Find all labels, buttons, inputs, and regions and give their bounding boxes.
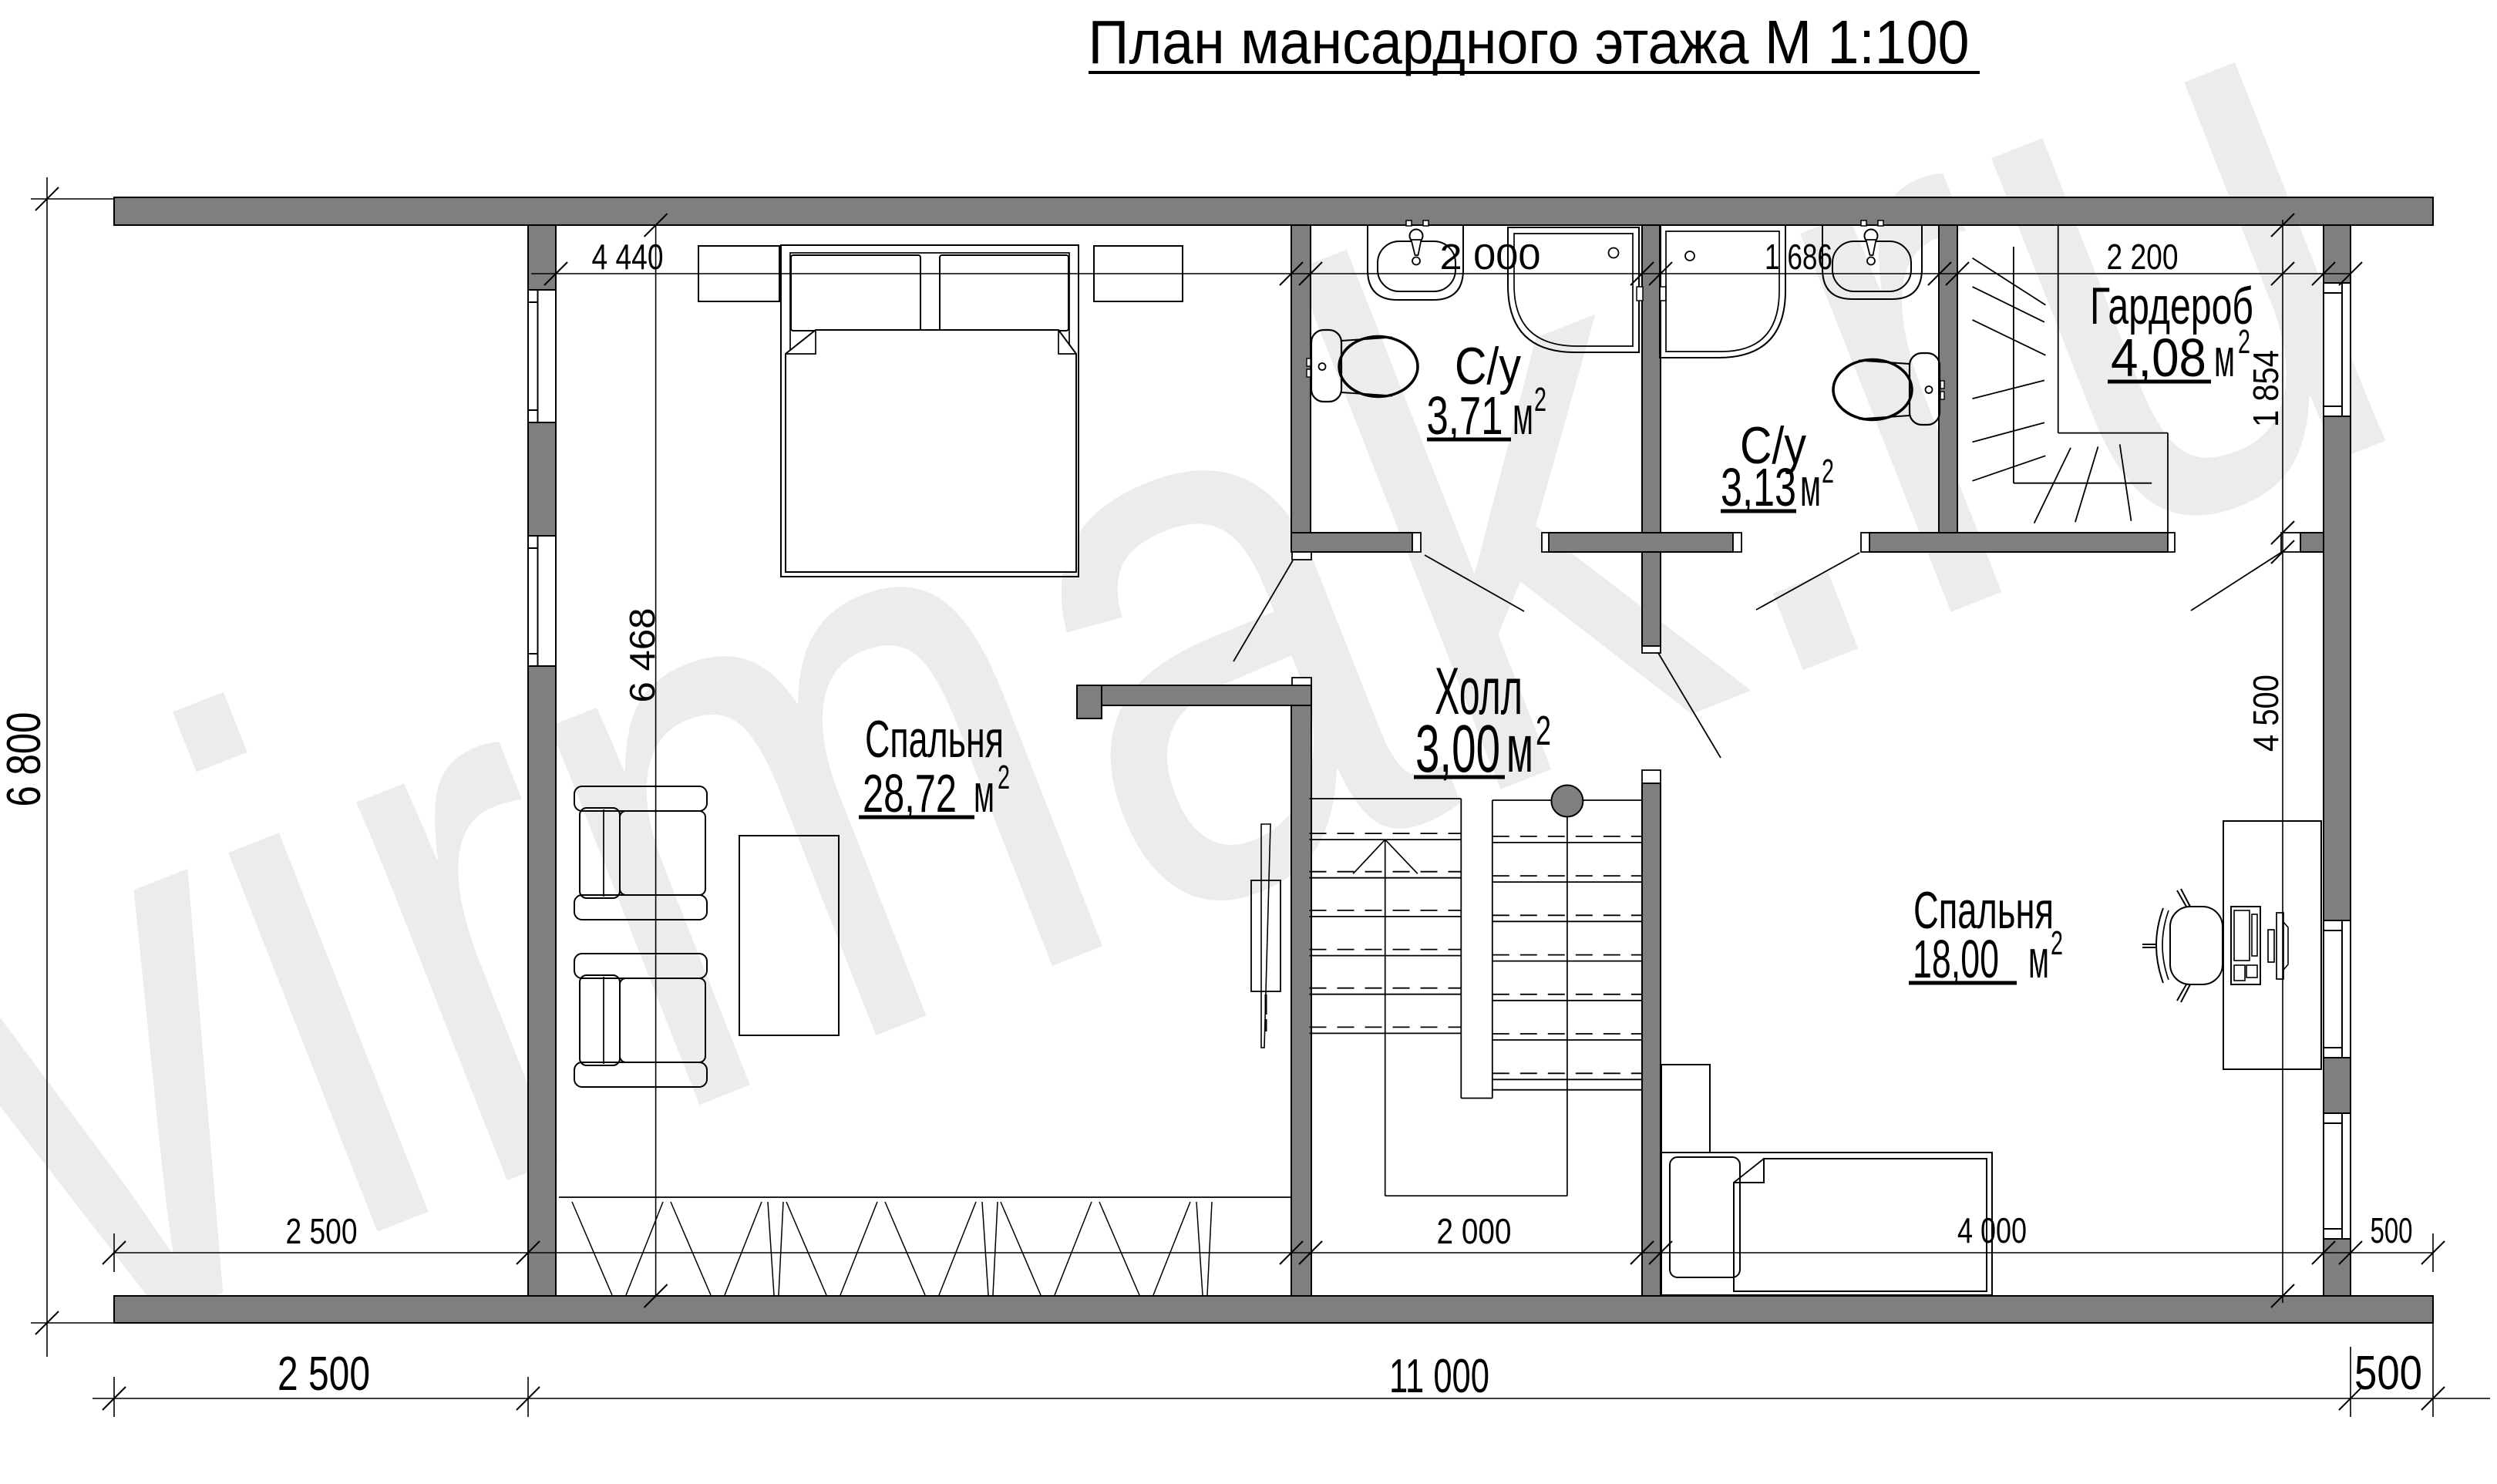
svg-text:2: 2 bbox=[2051, 924, 2063, 962]
svg-text:2: 2 bbox=[1536, 708, 1551, 754]
svg-text:2 500: 2 500 bbox=[286, 1211, 358, 1251]
svg-text:3,00: 3,00 bbox=[1415, 712, 1500, 786]
svg-text:2: 2 bbox=[998, 759, 1010, 796]
svg-text:м: м bbox=[2028, 929, 2049, 989]
svg-text:2: 2 bbox=[1822, 453, 1834, 490]
svg-text:3,13: 3,13 bbox=[1721, 457, 1796, 517]
svg-text:4 440: 4 440 bbox=[592, 237, 664, 277]
svg-text:2 200: 2 200 bbox=[2107, 237, 2179, 277]
svg-text:4 000: 4 000 bbox=[1957, 1210, 2027, 1250]
svg-text:1 686: 1 686 bbox=[1765, 237, 1832, 277]
svg-text:м: м bbox=[974, 763, 994, 823]
svg-text:3,71: 3,71 bbox=[1427, 385, 1503, 446]
svg-text:500: 500 bbox=[2371, 1210, 2413, 1250]
svg-text:2: 2 bbox=[2238, 323, 2250, 361]
svg-text:2 000: 2 000 bbox=[1437, 1211, 1512, 1251]
svg-text:4 500: 4 500 bbox=[2246, 675, 2286, 752]
svg-text:Спальня: Спальня bbox=[865, 710, 1004, 769]
svg-text:м: м bbox=[2214, 328, 2235, 388]
svg-text:2 500: 2 500 bbox=[278, 1348, 370, 1401]
svg-text:4,08: 4,08 bbox=[2111, 328, 2206, 388]
svg-text:м: м bbox=[1513, 385, 1533, 446]
svg-text:2: 2 bbox=[1534, 381, 1546, 419]
svg-text:План мансардного этажа М 1:100: План мансардного этажа М 1:100 bbox=[1089, 8, 1970, 76]
svg-text:6 468: 6 468 bbox=[622, 608, 662, 703]
svg-text:м: м bbox=[1800, 457, 1821, 517]
svg-text:18,00: 18,00 bbox=[1913, 929, 1999, 989]
svg-text:11 000: 11 000 bbox=[1389, 1350, 1489, 1403]
svg-text:1 854: 1 854 bbox=[2246, 350, 2286, 427]
svg-text:Гардероб: Гардероб bbox=[2090, 277, 2253, 335]
svg-text:500: 500 bbox=[2354, 1347, 2422, 1400]
svg-text:6 800: 6 800 bbox=[0, 712, 51, 807]
svg-text:2 000: 2 000 bbox=[1440, 237, 1541, 277]
svg-text:28,72: 28,72 bbox=[863, 763, 957, 823]
svg-text:м: м bbox=[1506, 712, 1533, 786]
